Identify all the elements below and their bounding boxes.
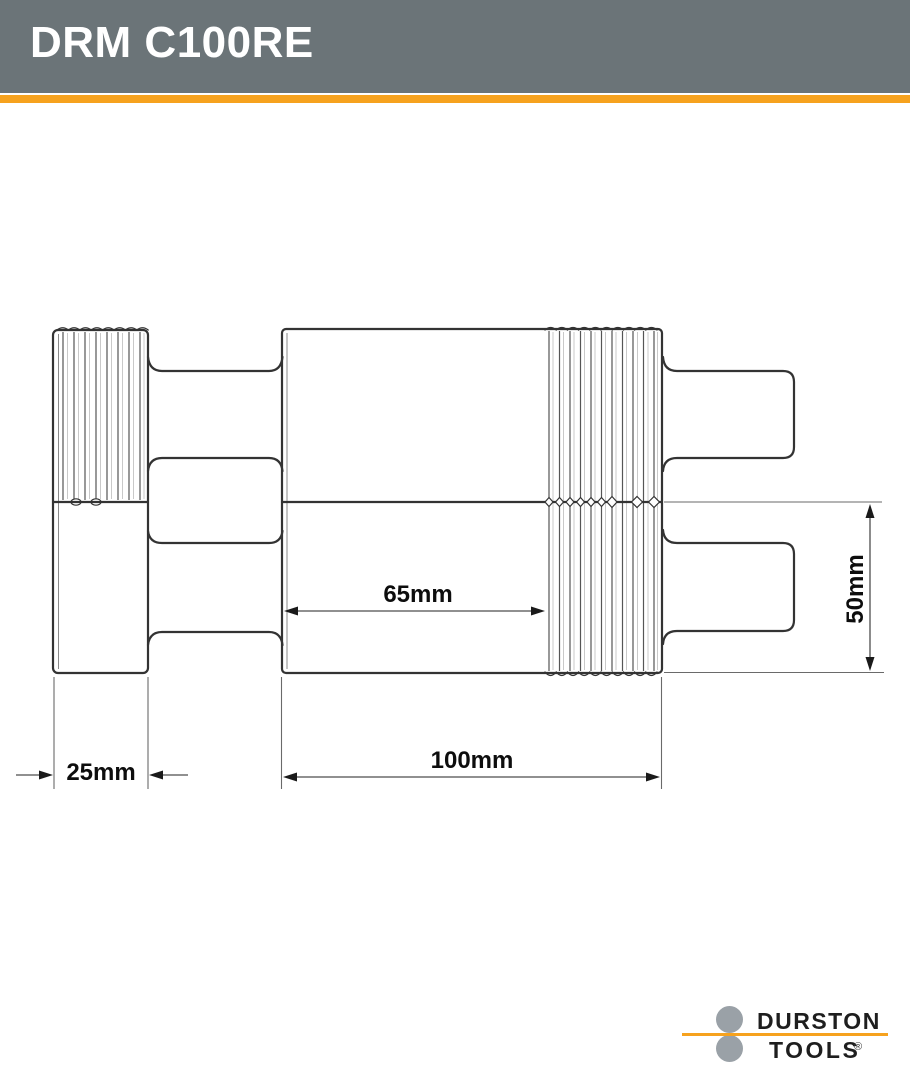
arrowhead-right: [646, 773, 660, 782]
bottom-neck-lower-edge: [148, 632, 283, 645]
dimension-65: 65mm: [284, 581, 545, 616]
left-block-grooves: [63, 332, 144, 500]
arrowhead-right: [39, 771, 53, 780]
left-extension-section: [53, 328, 148, 673]
logo-text-line2: TOOLS: [769, 1037, 860, 1064]
dimension-25: 25mm: [16, 677, 188, 789]
dimension-50: 50mm: [664, 502, 884, 673]
arrowhead-left: [284, 607, 298, 616]
logo-text-line1: DURSTON: [757, 1008, 881, 1035]
technical-drawing: 65mm 50mm 25mm 100mm: [0, 0, 910, 1090]
right-shafts: [663, 357, 794, 644]
dimension-100-label: 100mm: [431, 747, 514, 774]
logo-roller-top-icon: [716, 1006, 743, 1033]
page: DRM C100RE: [0, 0, 910, 1090]
registered-mark: ®: [854, 1041, 862, 1053]
roller-necks: [148, 357, 283, 645]
brand-logo: DURSTON TOOLS ®: [676, 1000, 901, 1075]
top-neck-lower-edge: [148, 458, 283, 471]
bottom-neck-upper-edge: [148, 531, 283, 543]
arrowhead-up: [866, 504, 875, 518]
top-right-shaft: [663, 357, 794, 471]
bottom-right-shaft: [663, 530, 794, 644]
dimension-25-label: 25mm: [66, 759, 135, 786]
arrowhead-left: [283, 773, 297, 782]
arrowhead-down: [866, 657, 875, 671]
top-neck-upper-edge: [148, 357, 283, 371]
logo-roller-bottom-icon: [716, 1035, 743, 1062]
dimension-65-label: 65mm: [383, 581, 452, 608]
arrowhead-right: [531, 607, 545, 616]
arrowhead-left: [149, 771, 163, 780]
dimension-50-label: 50mm: [842, 554, 869, 623]
dimension-100: 100mm: [282, 677, 662, 789]
nip-groove-diamonds: [545, 497, 660, 508]
